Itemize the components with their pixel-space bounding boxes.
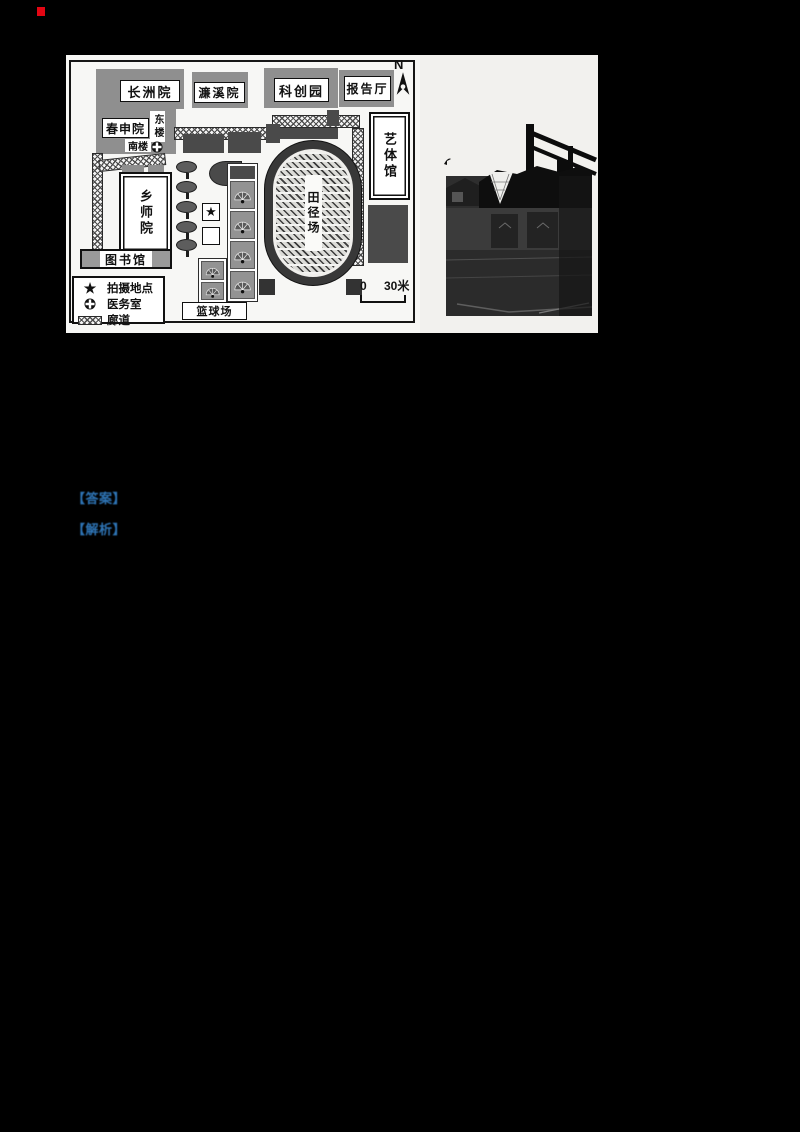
small-building — [202, 227, 220, 245]
building-xiangshiyuan: 乡师院 — [119, 172, 172, 254]
answer-label: 【答案】 — [72, 488, 126, 507]
legend-row-photo-spot: ★ 拍摄地点 — [77, 280, 160, 296]
medical-room-icon — [151, 141, 163, 153]
building-lianxiyuan: 濂溪院 — [194, 82, 245, 103]
building-library: 图书馆 — [80, 249, 172, 269]
corridor-swatch-icon — [77, 316, 103, 325]
building-nanlou: 南楼 — [125, 139, 151, 152]
track-field-label: 田径场 — [305, 175, 322, 251]
building-block — [122, 165, 144, 172]
building-block — [148, 165, 164, 172]
tree-icon — [176, 181, 197, 193]
legend-medical-label: 医务室 — [107, 296, 142, 312]
court-cell — [201, 261, 224, 280]
photo-area — [420, 55, 598, 333]
building-donglou: 东楼 — [150, 111, 165, 142]
building-dark-bar — [272, 128, 338, 139]
tree-icon — [176, 221, 197, 233]
scale-bar — [360, 295, 406, 303]
building-dark-block — [368, 205, 408, 263]
hoop-icon — [232, 273, 253, 297]
building-baogaoting: 报告厅 — [344, 76, 391, 101]
court-cap — [230, 166, 255, 179]
building-dark-bar — [183, 134, 224, 153]
library-label: 图书馆 — [100, 251, 152, 268]
building-changzhouyuan: 长洲院 — [120, 80, 180, 102]
hoop-icon — [232, 243, 253, 267]
scale-distance: 30米 — [384, 277, 409, 294]
basketball-courts-block — [198, 258, 227, 303]
tree-icon — [176, 161, 197, 173]
star-icon: ★ — [77, 281, 103, 295]
hoop-icon — [232, 213, 253, 237]
legend-corridor-label: 廊道 — [107, 312, 130, 328]
basketball-court-label: 篮球场 — [182, 302, 247, 320]
analysis-label: 【解析】 — [72, 519, 126, 538]
legend-row-corridor: 廊道 — [77, 312, 160, 328]
building-dark-block — [327, 110, 339, 126]
red-artifact-mark — [37, 7, 45, 16]
legend-row-medical: 医务室 — [77, 296, 160, 312]
medical-room-icon — [77, 298, 103, 310]
tree-icon — [176, 201, 197, 213]
campus-map: 长洲院 濂溪院 科创园 报告厅 春申院 东楼 南楼 N 乡师院 图书馆 艺体馆 — [66, 55, 420, 333]
hoop-icon — [203, 283, 222, 298]
court-cell — [230, 181, 255, 209]
court-cell — [230, 241, 255, 269]
legend-photo-spot-label: 拍摄地点 — [107, 280, 153, 296]
court-cell — [230, 271, 255, 299]
court-cell — [230, 211, 255, 239]
hoop-icon — [203, 263, 222, 278]
building-kechuangyuan: 科创园 — [274, 78, 329, 102]
photo-spot-star-icon: ★ — [202, 203, 220, 221]
building-chunshenyuan: 春申院 — [102, 118, 149, 138]
library-wing — [152, 251, 170, 267]
building-dark-bar — [228, 132, 261, 153]
building-dark-block — [266, 124, 280, 143]
track-corner-block — [259, 279, 275, 295]
legend: ★ 拍摄地点 医务室 廊道 — [72, 276, 165, 324]
basketball-courts-column — [227, 163, 258, 302]
scale-zero: 0 — [360, 279, 367, 293]
hoop-icon — [232, 183, 253, 207]
basketball-court-photo — [439, 108, 597, 330]
building-yitiguan: 艺体馆 — [369, 112, 410, 200]
court-cell — [201, 282, 224, 301]
compass-north-label: N — [394, 57, 403, 72]
corridor-strip — [272, 115, 360, 128]
compass-north-icon — [394, 71, 412, 97]
tree-icon — [176, 239, 197, 251]
library-wing — [82, 251, 100, 267]
